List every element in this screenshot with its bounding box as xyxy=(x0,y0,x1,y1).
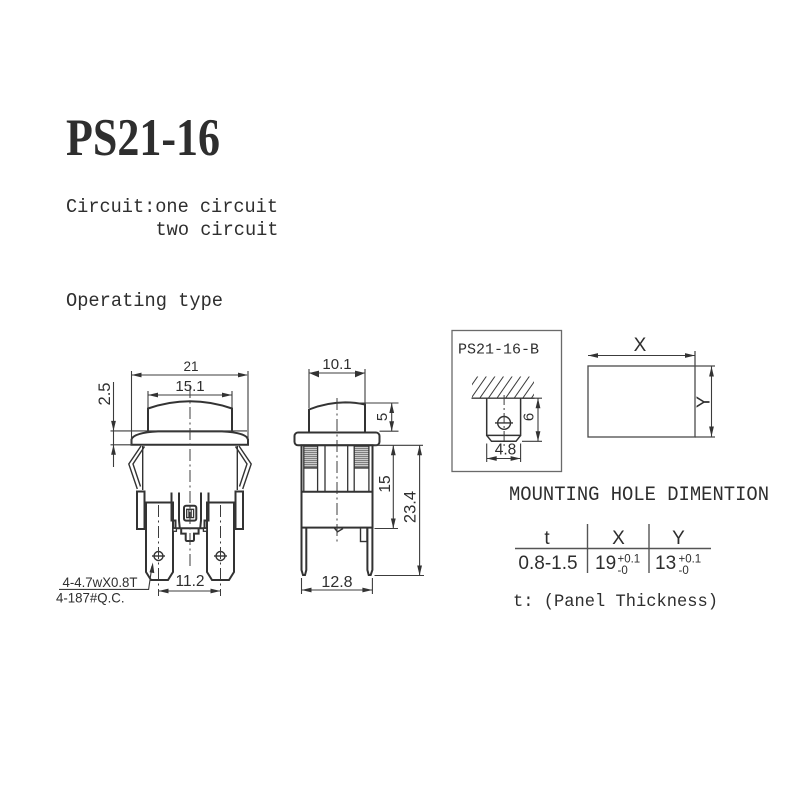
svg-text:15.1: 15.1 xyxy=(175,378,204,395)
svg-text:19: 19 xyxy=(595,553,616,574)
svg-text:+0.1: +0.1 xyxy=(679,554,702,566)
svg-text:X: X xyxy=(634,335,647,356)
svg-text:12.8: 12.8 xyxy=(321,574,352,591)
svg-text:4-187#Q.C.: 4-187#Q.C. xyxy=(56,590,125,606)
svg-text:4-4.7wX0.8T: 4-4.7wX0.8T xyxy=(63,574,138,590)
svg-text:-0: -0 xyxy=(679,565,689,577)
svg-text:Operating type: Operating type xyxy=(66,290,223,312)
svg-text:Y: Y xyxy=(694,396,714,408)
svg-text:21: 21 xyxy=(183,359,198,374)
svg-text:t: t xyxy=(544,528,550,549)
svg-text:-0: -0 xyxy=(618,565,628,577)
svg-text:15: 15 xyxy=(377,475,394,492)
svg-text:two circuit: two circuit xyxy=(156,219,279,241)
svg-text:PS21-16-B: PS21-16-B xyxy=(458,342,539,359)
svg-text:6: 6 xyxy=(521,413,538,421)
svg-text:t: (Panel Thickness): t: (Panel Thickness) xyxy=(513,592,718,612)
svg-text:2.5: 2.5 xyxy=(96,383,114,406)
svg-text:0.8-1.5: 0.8-1.5 xyxy=(518,553,577,574)
svg-text:13: 13 xyxy=(655,553,676,574)
svg-text:PS21-16: PS21-16 xyxy=(66,109,220,167)
svg-text:11.2: 11.2 xyxy=(175,573,204,590)
svg-text:10.1: 10.1 xyxy=(322,356,351,373)
svg-text:X: X xyxy=(612,528,625,549)
svg-text:Circuit:one circuit: Circuit:one circuit xyxy=(66,196,278,218)
svg-text:4.8: 4.8 xyxy=(495,442,517,459)
svg-text:Y: Y xyxy=(672,528,685,549)
svg-text:5: 5 xyxy=(374,413,391,421)
svg-text:23.4: 23.4 xyxy=(402,491,420,523)
svg-text:MOUNTING HOLE DIMENTION: MOUNTING HOLE DIMENTION xyxy=(509,484,769,507)
svg-text:+0.1: +0.1 xyxy=(618,554,641,566)
